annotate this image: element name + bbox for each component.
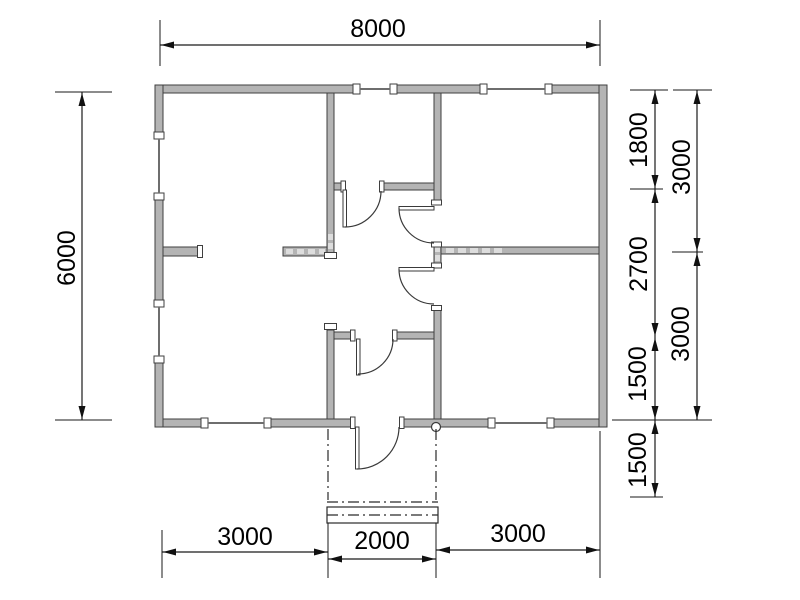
window-bottom-left <box>201 418 271 428</box>
dim-right-2700: 2700 <box>625 236 653 292</box>
window-top-small <box>353 84 397 94</box>
dim-bottom-3000-left: 3000 <box>217 523 273 551</box>
windows <box>154 84 554 428</box>
dim-right-1500-upper: 1500 <box>624 346 652 402</box>
door-top-right-room <box>399 200 442 247</box>
window-left-upper <box>154 132 164 200</box>
dim-left-total: 6000 <box>53 230 81 286</box>
dimension-extension-lines <box>55 20 712 578</box>
passage-living-hall <box>198 246 337 330</box>
floor-plan-canvas: 8000 6000 1800 2700 1500 1500 3000 3000 … <box>0 0 800 600</box>
door-vestibule <box>351 330 398 375</box>
wall-exterior-right <box>599 85 607 427</box>
dim-right-outer-3000-lower: 3000 <box>667 306 695 362</box>
dim-right-1800: 1800 <box>625 112 653 168</box>
window-bottom-right <box>488 418 554 428</box>
wall-living-stub-left <box>163 247 200 256</box>
dim-bottom-3000-right: 3000 <box>490 520 546 548</box>
wall-hall-right-upper <box>434 93 441 205</box>
wall-hall-left-lower <box>327 330 334 419</box>
window-top-right <box>480 84 552 94</box>
door-bottom-right-room <box>399 263 442 311</box>
door-bathroom <box>341 181 384 227</box>
door-entry <box>351 417 405 469</box>
exterior-walls <box>155 85 607 427</box>
porch <box>327 429 438 523</box>
floor-plan-drawing: 8000 6000 1800 2700 1500 1500 3000 3000 … <box>0 0 800 600</box>
dim-top-total: 8000 <box>350 15 406 43</box>
window-left-lower <box>154 300 164 363</box>
dim-right-outer-3000-upper: 3000 <box>668 139 696 195</box>
dim-right-1500-lower: 1500 <box>624 432 652 488</box>
interior-walls <box>163 93 599 419</box>
wall-hall-right-lower <box>434 306 441 419</box>
dim-bottom-2000: 2000 <box>354 527 410 555</box>
wall-hall-left-upper <box>327 93 334 258</box>
